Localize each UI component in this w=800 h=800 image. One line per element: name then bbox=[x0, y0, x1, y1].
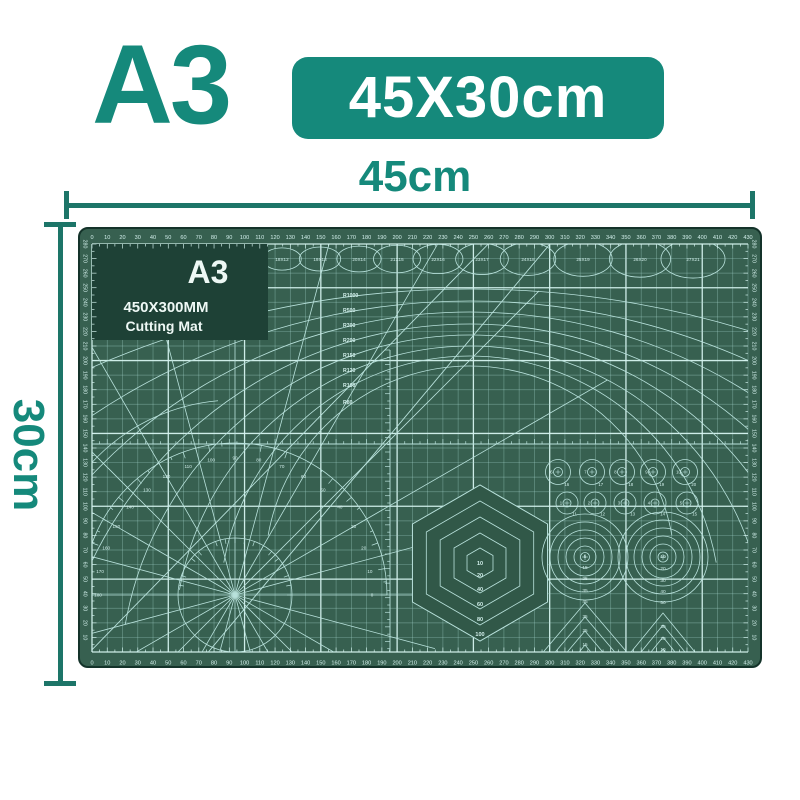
svg-text:50: 50 bbox=[165, 235, 171, 241]
svg-text:40: 40 bbox=[82, 591, 88, 597]
svg-text:300: 300 bbox=[545, 235, 554, 241]
svg-text:370: 370 bbox=[652, 661, 661, 667]
svg-text:19X13: 19X13 bbox=[313, 257, 327, 262]
width-dimension-label: 45cm bbox=[330, 154, 500, 200]
svg-text:10: 10 bbox=[676, 470, 681, 475]
svg-text:90: 90 bbox=[226, 235, 232, 241]
svg-text:0: 0 bbox=[90, 235, 93, 241]
svg-text:170: 170 bbox=[82, 400, 88, 409]
svg-text:20: 20 bbox=[660, 566, 666, 572]
svg-text:200: 200 bbox=[751, 356, 757, 365]
svg-text:200: 200 bbox=[392, 235, 401, 241]
svg-text:270: 270 bbox=[499, 661, 508, 667]
svg-text:20: 20 bbox=[119, 661, 125, 667]
svg-text:180: 180 bbox=[362, 235, 371, 241]
svg-text:170: 170 bbox=[96, 569, 104, 574]
svg-text:250: 250 bbox=[82, 283, 88, 292]
svg-text:190: 190 bbox=[377, 235, 386, 241]
svg-text:90: 90 bbox=[226, 661, 232, 667]
svg-text:50: 50 bbox=[82, 576, 88, 582]
svg-text:70: 70 bbox=[279, 464, 285, 469]
svg-text:R150: R150 bbox=[343, 353, 356, 359]
size-code-heading: A3 bbox=[92, 22, 302, 147]
svg-text:400: 400 bbox=[698, 235, 707, 241]
svg-text:0: 0 bbox=[90, 661, 93, 667]
svg-text:20: 20 bbox=[361, 546, 367, 551]
height-dimension-line bbox=[58, 224, 63, 686]
svg-text:180: 180 bbox=[94, 593, 102, 598]
svg-text:Cutting Mat: Cutting Mat bbox=[126, 318, 203, 334]
svg-text:25: 25 bbox=[582, 628, 588, 633]
svg-text:300: 300 bbox=[545, 661, 554, 667]
svg-text:15: 15 bbox=[582, 565, 588, 571]
svg-text:350: 350 bbox=[621, 661, 630, 667]
svg-text:10: 10 bbox=[660, 647, 666, 652]
svg-text:200: 200 bbox=[392, 661, 401, 667]
svg-text:450X300MM: 450X300MM bbox=[123, 299, 208, 316]
svg-text:60: 60 bbox=[301, 474, 307, 479]
svg-text:280: 280 bbox=[514, 661, 523, 667]
svg-text:22X16: 22X16 bbox=[431, 257, 445, 262]
svg-text:140: 140 bbox=[82, 444, 88, 453]
svg-text:380: 380 bbox=[667, 235, 676, 241]
svg-text:60: 60 bbox=[477, 602, 483, 608]
svg-text:100: 100 bbox=[475, 632, 484, 638]
svg-text:280: 280 bbox=[514, 235, 523, 241]
svg-text:70: 70 bbox=[82, 547, 88, 553]
cutting-mat: 0102030405060708090100110120130140150160… bbox=[78, 227, 762, 668]
svg-text:270: 270 bbox=[751, 254, 757, 263]
svg-text:40: 40 bbox=[751, 591, 757, 597]
svg-text:20: 20 bbox=[119, 235, 125, 241]
svg-text:50: 50 bbox=[751, 576, 757, 582]
svg-text:25X19: 25X19 bbox=[576, 257, 590, 262]
svg-text:R1000: R1000 bbox=[343, 293, 358, 299]
svg-text:220: 220 bbox=[82, 327, 88, 336]
svg-text:230: 230 bbox=[82, 313, 88, 322]
svg-text:260: 260 bbox=[484, 235, 493, 241]
svg-text:100: 100 bbox=[240, 235, 249, 241]
svg-text:20: 20 bbox=[660, 636, 666, 641]
svg-text:430: 430 bbox=[743, 661, 752, 667]
svg-text:240: 240 bbox=[453, 661, 462, 667]
svg-text:17: 17 bbox=[598, 482, 603, 487]
svg-text:390: 390 bbox=[682, 235, 691, 241]
svg-text:30: 30 bbox=[660, 578, 666, 584]
size-badge-label: 45X30cm bbox=[349, 57, 608, 139]
svg-text:160: 160 bbox=[331, 661, 340, 667]
svg-text:40: 40 bbox=[150, 661, 156, 667]
svg-text:15: 15 bbox=[582, 642, 588, 647]
svg-text:140: 140 bbox=[301, 235, 310, 241]
svg-text:25: 25 bbox=[582, 576, 588, 582]
svg-text:40: 40 bbox=[660, 589, 666, 595]
svg-text:180: 180 bbox=[82, 385, 88, 394]
svg-text:30: 30 bbox=[751, 605, 757, 611]
svg-text:120: 120 bbox=[82, 473, 88, 482]
svg-text:150: 150 bbox=[113, 524, 121, 529]
svg-text:130: 130 bbox=[286, 235, 295, 241]
svg-text:390: 390 bbox=[682, 661, 691, 667]
svg-text:230: 230 bbox=[438, 661, 447, 667]
svg-text:18: 18 bbox=[628, 482, 633, 487]
svg-text:100: 100 bbox=[207, 458, 215, 463]
width-dimension-line bbox=[66, 203, 754, 208]
svg-text:290: 290 bbox=[530, 661, 539, 667]
svg-text:120: 120 bbox=[163, 474, 171, 479]
svg-text:R80: R80 bbox=[343, 400, 353, 406]
svg-text:26X20: 26X20 bbox=[633, 257, 647, 262]
svg-text:R100: R100 bbox=[343, 383, 356, 389]
height-dimension-label: 30cm bbox=[3, 375, 53, 535]
svg-text:350: 350 bbox=[621, 235, 630, 241]
svg-text:27X21: 27X21 bbox=[686, 257, 700, 262]
svg-text:250: 250 bbox=[469, 661, 478, 667]
svg-text:160: 160 bbox=[82, 415, 88, 424]
svg-text:10: 10 bbox=[104, 235, 110, 241]
svg-text:30: 30 bbox=[135, 235, 141, 241]
product-image: A3 45X30cm 45cm 30cm 0102030405060708090… bbox=[0, 0, 800, 800]
svg-text:10: 10 bbox=[660, 554, 666, 560]
svg-text:110: 110 bbox=[184, 464, 192, 469]
svg-text:290: 290 bbox=[530, 235, 539, 241]
svg-text:A3: A3 bbox=[188, 254, 229, 290]
svg-text:10: 10 bbox=[82, 635, 88, 641]
svg-text:180: 180 bbox=[362, 661, 371, 667]
svg-text:60: 60 bbox=[82, 562, 88, 568]
svg-text:100: 100 bbox=[751, 502, 757, 511]
svg-text:230: 230 bbox=[438, 235, 447, 241]
svg-text:230: 230 bbox=[751, 313, 757, 322]
svg-text:110: 110 bbox=[751, 488, 757, 496]
svg-text:240: 240 bbox=[82, 298, 88, 307]
svg-text:30: 30 bbox=[660, 624, 666, 629]
svg-text:220: 220 bbox=[423, 661, 432, 667]
svg-text:100: 100 bbox=[82, 502, 88, 511]
svg-text:170: 170 bbox=[347, 235, 356, 241]
svg-text:100: 100 bbox=[240, 661, 249, 667]
height-dimension-endcap-top bbox=[44, 222, 76, 227]
svg-text:30: 30 bbox=[351, 524, 357, 529]
svg-text:60: 60 bbox=[751, 562, 757, 568]
svg-text:60: 60 bbox=[180, 235, 186, 241]
svg-text:10: 10 bbox=[751, 635, 757, 641]
svg-text:180: 180 bbox=[751, 385, 757, 394]
svg-text:5: 5 bbox=[584, 554, 587, 560]
svg-text:120: 120 bbox=[270, 235, 279, 241]
svg-text:90: 90 bbox=[82, 518, 88, 524]
svg-text:340: 340 bbox=[606, 235, 615, 241]
svg-text:140: 140 bbox=[751, 444, 757, 453]
svg-text:150: 150 bbox=[751, 429, 757, 438]
svg-text:160: 160 bbox=[331, 235, 340, 241]
svg-text:220: 220 bbox=[423, 235, 432, 241]
size-badge: 45X30cm bbox=[292, 57, 664, 139]
svg-text:170: 170 bbox=[751, 400, 757, 409]
svg-text:70: 70 bbox=[196, 235, 202, 241]
svg-text:24X18: 24X18 bbox=[521, 257, 535, 262]
svg-text:50: 50 bbox=[660, 600, 666, 606]
svg-text:420: 420 bbox=[728, 661, 737, 667]
svg-text:410: 410 bbox=[713, 661, 722, 667]
svg-text:18X12: 18X12 bbox=[275, 257, 289, 262]
svg-text:R120: R120 bbox=[343, 368, 356, 374]
svg-text:260: 260 bbox=[82, 269, 88, 278]
svg-text:240: 240 bbox=[453, 235, 462, 241]
svg-text:80: 80 bbox=[82, 533, 88, 539]
svg-text:110: 110 bbox=[255, 235, 264, 241]
svg-text:360: 360 bbox=[637, 661, 646, 667]
svg-text:30: 30 bbox=[82, 605, 88, 611]
svg-text:130: 130 bbox=[143, 488, 151, 493]
svg-text:160: 160 bbox=[102, 546, 110, 551]
svg-text:210: 210 bbox=[751, 342, 757, 351]
svg-text:250: 250 bbox=[751, 283, 757, 292]
svg-text:170: 170 bbox=[347, 661, 356, 667]
svg-text:400: 400 bbox=[698, 661, 707, 667]
width-dimension-endcap-left bbox=[64, 191, 69, 219]
svg-text:110: 110 bbox=[82, 488, 88, 496]
svg-text:320: 320 bbox=[576, 661, 585, 667]
svg-text:280: 280 bbox=[82, 240, 88, 249]
svg-text:270: 270 bbox=[82, 254, 88, 263]
svg-text:330: 330 bbox=[591, 661, 600, 667]
svg-text:23X17: 23X17 bbox=[475, 257, 489, 262]
svg-text:30: 30 bbox=[135, 661, 141, 667]
svg-text:120: 120 bbox=[751, 473, 757, 482]
svg-text:R200: R200 bbox=[343, 338, 356, 344]
svg-text:120: 120 bbox=[270, 661, 279, 667]
svg-text:16: 16 bbox=[564, 482, 569, 487]
svg-text:70: 70 bbox=[751, 547, 757, 553]
svg-text:R500: R500 bbox=[343, 308, 356, 314]
svg-text:310: 310 bbox=[560, 235, 569, 241]
svg-text:10: 10 bbox=[104, 661, 110, 667]
svg-text:80: 80 bbox=[211, 235, 217, 241]
svg-text:45: 45 bbox=[582, 599, 588, 605]
svg-text:90: 90 bbox=[751, 518, 757, 524]
svg-text:130: 130 bbox=[286, 661, 295, 667]
svg-text:380: 380 bbox=[667, 661, 676, 667]
svg-text:130: 130 bbox=[82, 458, 88, 467]
svg-text:130: 130 bbox=[751, 458, 757, 467]
svg-text:340: 340 bbox=[606, 661, 615, 667]
svg-text:240: 240 bbox=[751, 298, 757, 307]
svg-text:80: 80 bbox=[751, 533, 757, 539]
svg-text:190: 190 bbox=[377, 661, 386, 667]
svg-text:150: 150 bbox=[316, 235, 325, 241]
svg-text:40: 40 bbox=[337, 505, 343, 510]
svg-text:15: 15 bbox=[692, 511, 697, 516]
svg-text:20: 20 bbox=[477, 573, 483, 579]
svg-text:80: 80 bbox=[256, 458, 262, 463]
svg-text:80: 80 bbox=[477, 617, 483, 623]
svg-text:370: 370 bbox=[652, 235, 661, 241]
svg-text:10: 10 bbox=[477, 561, 483, 567]
svg-text:0: 0 bbox=[371, 593, 374, 598]
svg-text:80: 80 bbox=[211, 661, 217, 667]
svg-text:19: 19 bbox=[659, 482, 664, 487]
svg-text:R300: R300 bbox=[343, 323, 356, 329]
svg-text:250: 250 bbox=[469, 235, 478, 241]
svg-text:35: 35 bbox=[582, 588, 588, 594]
svg-text:330: 330 bbox=[591, 235, 600, 241]
height-dimension-endcap-bottom bbox=[44, 681, 76, 686]
svg-text:140: 140 bbox=[126, 505, 134, 510]
mat-logo: A3450X300MMCutting Mat bbox=[92, 244, 268, 340]
svg-text:50: 50 bbox=[320, 488, 326, 493]
svg-text:190: 190 bbox=[751, 371, 757, 380]
svg-text:150: 150 bbox=[316, 661, 325, 667]
svg-text:13: 13 bbox=[630, 511, 635, 516]
svg-text:35: 35 bbox=[582, 614, 588, 619]
svg-text:110: 110 bbox=[255, 661, 264, 667]
svg-text:60: 60 bbox=[180, 661, 186, 667]
svg-text:360: 360 bbox=[637, 235, 646, 241]
svg-text:40: 40 bbox=[477, 587, 483, 593]
width-dimension-endcap-right bbox=[750, 191, 755, 219]
svg-text:150: 150 bbox=[82, 429, 88, 438]
svg-text:280: 280 bbox=[751, 240, 757, 249]
svg-text:410: 410 bbox=[713, 235, 722, 241]
svg-text:20X14: 20X14 bbox=[352, 257, 366, 262]
svg-text:220: 220 bbox=[751, 327, 757, 336]
svg-text:260: 260 bbox=[484, 661, 493, 667]
svg-text:190: 190 bbox=[82, 371, 88, 380]
svg-text:12: 12 bbox=[600, 511, 605, 516]
svg-text:40: 40 bbox=[150, 235, 156, 241]
svg-text:260: 260 bbox=[751, 269, 757, 278]
svg-text:210: 210 bbox=[408, 661, 417, 667]
svg-text:20: 20 bbox=[751, 620, 757, 626]
svg-text:210: 210 bbox=[408, 235, 417, 241]
svg-text:320: 320 bbox=[576, 235, 585, 241]
svg-text:20: 20 bbox=[691, 482, 696, 487]
svg-text:10: 10 bbox=[367, 569, 373, 574]
svg-text:420: 420 bbox=[728, 235, 737, 241]
svg-text:270: 270 bbox=[499, 235, 508, 241]
svg-text:210: 210 bbox=[82, 342, 88, 351]
svg-text:20: 20 bbox=[82, 620, 88, 626]
svg-text:50: 50 bbox=[165, 661, 171, 667]
svg-text:140: 140 bbox=[301, 661, 310, 667]
svg-text:200: 200 bbox=[82, 356, 88, 365]
svg-text:160: 160 bbox=[751, 415, 757, 424]
svg-text:70: 70 bbox=[196, 661, 202, 667]
svg-text:310: 310 bbox=[560, 661, 569, 667]
svg-text:21X15: 21X15 bbox=[390, 257, 404, 262]
